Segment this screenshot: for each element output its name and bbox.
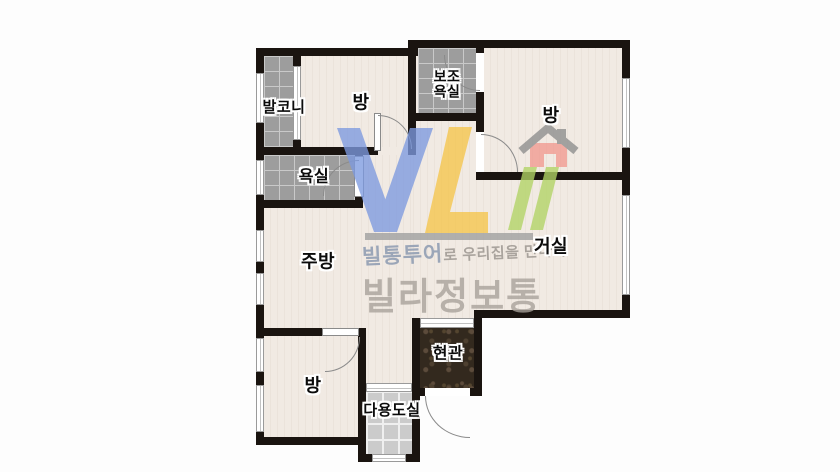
room-label-room-top-left: 방 bbox=[352, 94, 369, 113]
room-label-kitchen: 주방 bbox=[301, 253, 335, 272]
room-label-room-bottom: 방 bbox=[304, 377, 321, 396]
aux-bath-line1: 보조 bbox=[434, 68, 461, 84]
aux-bath-line2: 욕실 bbox=[434, 83, 461, 99]
logo-letter-v-right bbox=[374, 128, 433, 232]
room-label-living: 거실 bbox=[534, 238, 568, 257]
room-label-balcony: 발코니 bbox=[263, 100, 306, 116]
logo-letter-l bbox=[425, 127, 488, 233]
floorplan-canvas: 빌통투어로 우리집을 만나다 빌라정보통 발코니 방 보조욕실 방 욕실 주방 … bbox=[0, 0, 840, 472]
room-label-utility: 다용도실 bbox=[363, 403, 420, 419]
brand-text: 빌라정보통 bbox=[362, 266, 542, 320]
room-label-entrance: 현관 bbox=[433, 347, 463, 364]
tagline-brand-text: 빌통투어 bbox=[362, 242, 444, 269]
room-label-aux-bathroom: 보조욕실 bbox=[434, 69, 461, 98]
room-label-bathroom: 욕실 bbox=[299, 170, 329, 187]
logo-house-body bbox=[530, 143, 567, 167]
room-label-room-top-right: 방 bbox=[542, 107, 559, 126]
